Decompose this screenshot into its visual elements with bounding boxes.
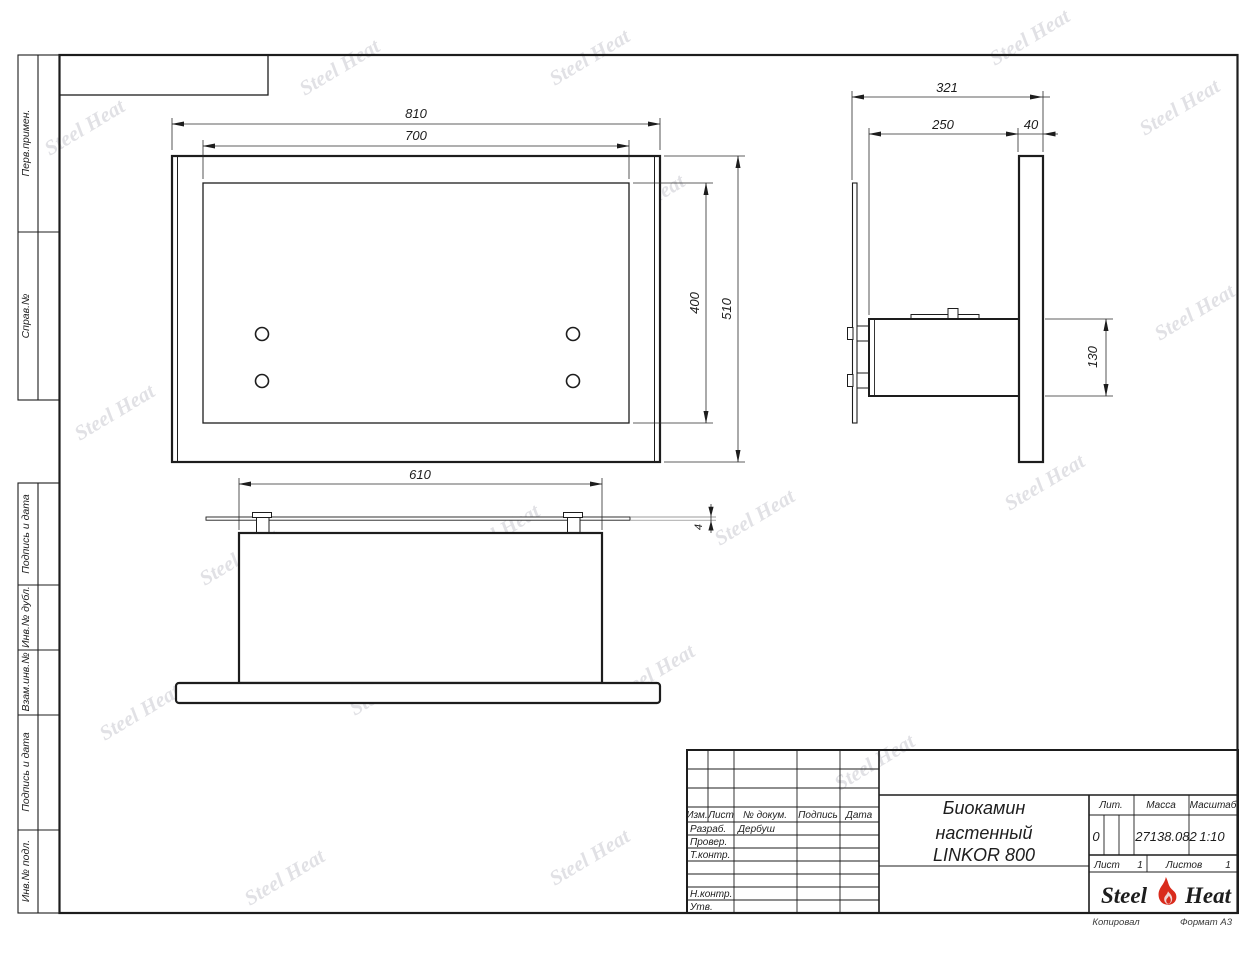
front-mount-plate [203, 183, 629, 423]
margin-label-vzam-inv: Взам.инв.№ [20, 652, 32, 711]
bottom-bolt [257, 518, 270, 534]
product-title-line3: LINKOR 800 [933, 845, 1035, 865]
tb-lit-value: 0 [1092, 829, 1100, 844]
tb-col-sign: Подпись [798, 810, 838, 821]
bottom-dim-lines [239, 478, 716, 533]
tb-col-doc: № докум. [743, 810, 787, 821]
tb-sheets-value: 1 [1225, 860, 1231, 871]
bottom-bolt [564, 513, 583, 518]
dim-front-outer-height: 510 [719, 297, 734, 319]
drawing-sheet: Steel Heat Steel Heat Steel Heat Steel H… [0, 0, 1255, 970]
tb-scale-label: Масштаб [1190, 799, 1237, 811]
tb-row-utv: Утв. [689, 902, 713, 913]
tb-sheet-label: Лист [1093, 860, 1120, 871]
margin-label-podpis-data-1: Подпись и дата [20, 494, 32, 574]
tb-row-prover: Провер. [690, 837, 727, 848]
dim-side-total-depth: 321 [936, 80, 958, 95]
logo-text-heat: Heat [1184, 883, 1232, 908]
footer-copied-label: Копировал [1092, 917, 1140, 928]
dim-front-inner-height: 400 [687, 291, 702, 313]
tb-col-date: Дата [845, 810, 873, 821]
side-bolt [857, 326, 869, 341]
product-title-line1: Биокамин [943, 798, 1026, 818]
dim-bottom-plate-thickness: 4 [693, 524, 705, 530]
side-view: 321 250 40 130 [848, 80, 1114, 462]
drawing-canvas: Перв.примен. Справ.№ Подпись и дата Инв.… [0, 0, 1255, 970]
front-view: 810 700 400 510 [172, 106, 745, 462]
steelheat-logo: Steel Heat [1101, 877, 1232, 908]
bottom-base-flange [176, 683, 660, 703]
tb-developer-name: Дербуш [737, 823, 776, 835]
tb-mass-value: 27138.082 [1134, 829, 1197, 844]
dim-side-box-height: 130 [1085, 345, 1100, 367]
flame-icon [1159, 877, 1177, 905]
mount-hole [256, 328, 269, 341]
mount-hole [567, 375, 580, 388]
margin-label-perv-primen: Перв.примен. [20, 110, 32, 177]
mount-hole [567, 328, 580, 341]
left-margin-labels: Перв.примен. Справ.№ Подпись и дата Инв.… [20, 110, 32, 903]
dim-front-inner-width: 700 [405, 128, 427, 143]
bottom-view: 610 4 [176, 467, 716, 703]
bottom-firebox [239, 533, 602, 683]
side-bolt [848, 375, 854, 387]
side-glass-panel [1019, 156, 1043, 462]
side-bolt [848, 328, 854, 340]
tb-row-razrab: Разраб. [690, 823, 726, 835]
tb-mass-label: Масса [1146, 800, 1176, 811]
dim-bottom-box-width: 610 [409, 467, 431, 482]
dim-side-glass-depth: 40 [1024, 117, 1039, 132]
tb-col-izm: Изм. [686, 810, 707, 821]
title-block: Изм. Лист № докум. Подпись Дата Разраб. … [686, 750, 1238, 913]
dim-front-outer-width: 810 [405, 106, 427, 121]
logo-text-steel: Steel [1101, 883, 1148, 908]
tb-sheet-value: 1 [1137, 860, 1143, 871]
tb-col-list: Лист [707, 810, 734, 821]
bottom-bolt [253, 513, 272, 518]
margin-label-inv-dubl: Инв.№ дубл. [20, 586, 32, 648]
tb-scale-value: 1:10 [1199, 829, 1225, 844]
footer-format-label: Формат А3 [1180, 917, 1233, 928]
tb-row-nkontr: Н.контр. [690, 889, 732, 900]
side-knob [948, 309, 958, 320]
side-bolt [857, 373, 869, 388]
dim-side-box-depth: 250 [931, 117, 954, 132]
product-title-line2: настенный [936, 823, 1033, 843]
tb-row-tkontr: Т.контр. [690, 850, 730, 861]
margin-label-podpis-data-2: Подпись и дата [20, 732, 32, 812]
tb-sheets-label: Листов [1165, 860, 1202, 871]
side-firebox [869, 319, 1019, 396]
mount-hole [256, 375, 269, 388]
margin-label-sprav-no: Справ.№ [20, 294, 32, 339]
tb-lit-label: Лит. [1098, 800, 1122, 811]
bottom-bolt [568, 518, 581, 534]
margin-label-inv-podl: Инв.№ подл. [20, 840, 32, 902]
